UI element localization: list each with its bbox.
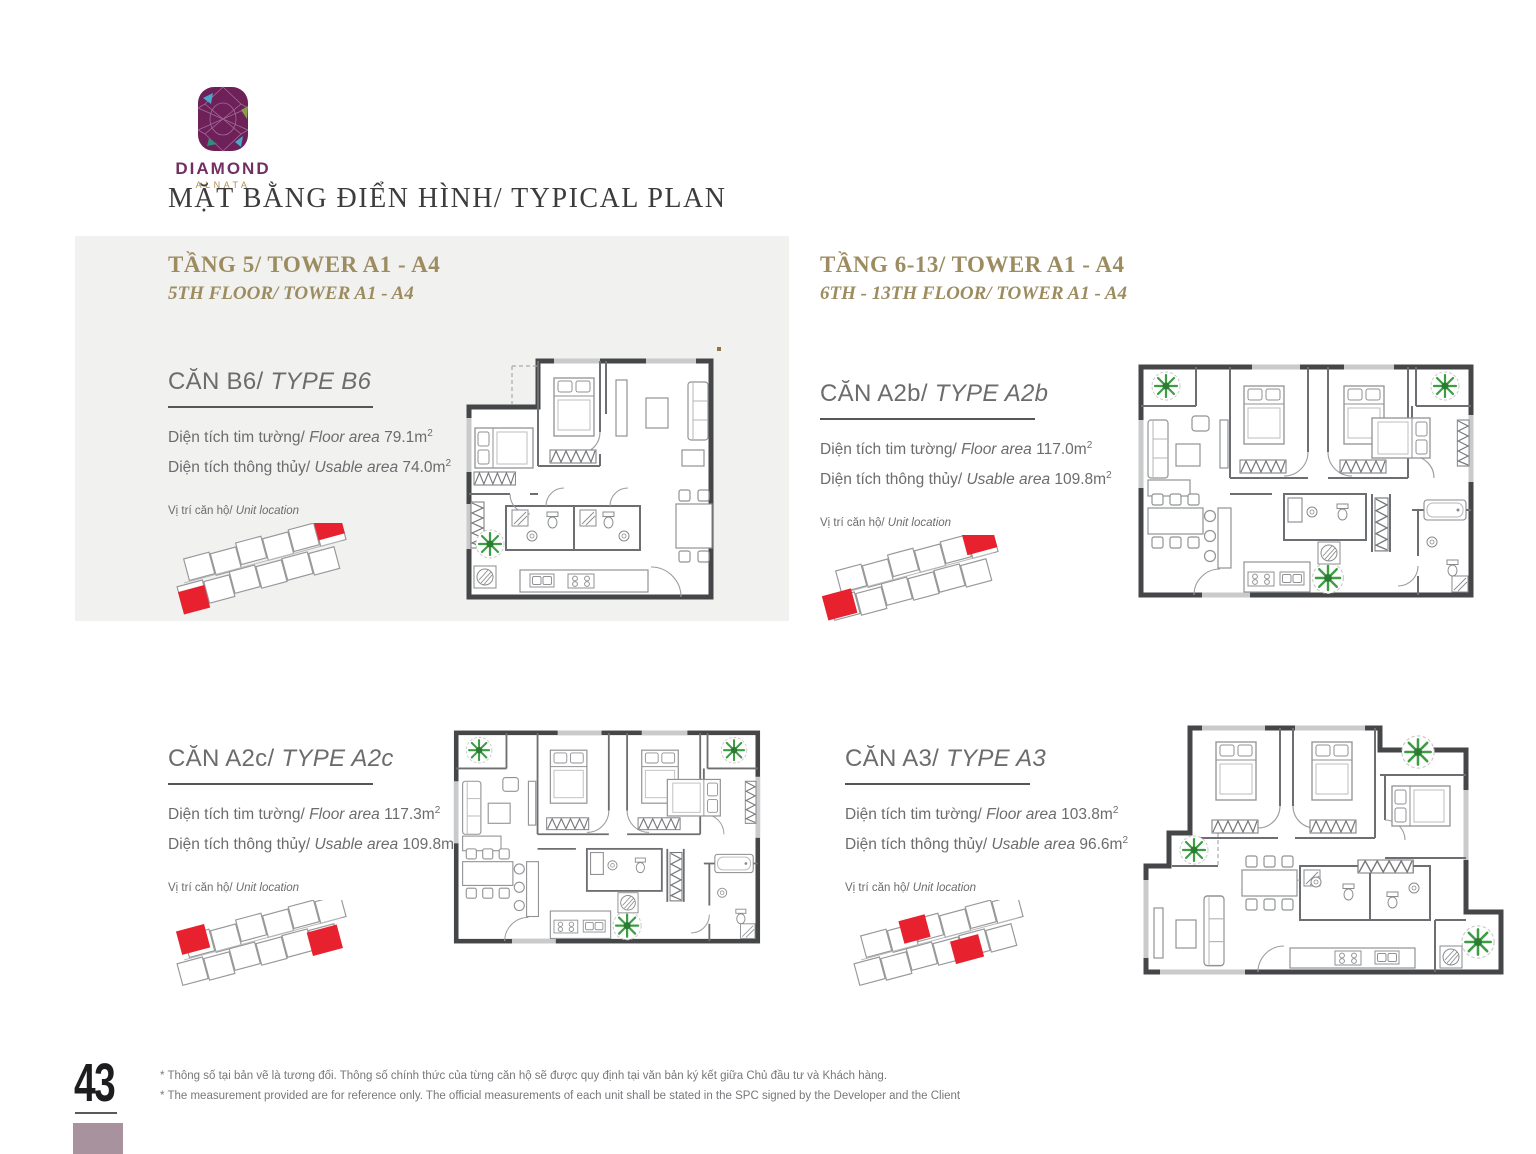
floor-plan-a3 [1130,720,1506,980]
floor-plan-a2c [448,726,766,948]
unit-name-vi: CĂN B6/ [168,368,263,395]
sup-2: 2 [1113,805,1119,816]
bed-icon [1312,742,1352,800]
basin-icon [1307,507,1317,517]
wardrobe-icon [1358,860,1413,873]
sofa-icon [1148,420,1168,478]
shower-icon [512,510,528,526]
dining-set-icon [1242,856,1297,910]
wardrobe-icon [1340,460,1386,473]
stool [1205,551,1216,562]
shower-icon [580,510,596,526]
basin-icon [527,531,537,541]
plant-icon [1462,926,1494,958]
shower-icon [1452,576,1468,592]
sup-2: 2 [1087,440,1093,451]
page-number-underline [75,1112,117,1114]
sink-icon [1280,572,1304,585]
keyplan-a2c [168,900,358,995]
usable-area-label-vi: Diện tích thông thủy/ [168,459,310,476]
bed-icon [475,428,533,468]
unit-name-en: TYPE B6 [270,368,371,395]
vanity [1288,498,1302,522]
bed-icon [1392,786,1450,826]
plant-icon [1152,372,1180,400]
side-table [682,450,704,466]
stove-icon [1335,951,1361,965]
footnotes: * Thông số tại bản vẽ là tương đối. Thôn… [160,1066,960,1106]
diamond-gem-icon [197,86,249,152]
sup-2: 2 [435,805,441,816]
toilet-icon [1387,892,1398,908]
wardrobe-icon [1375,498,1388,551]
title-underline [168,783,373,785]
sofa-icon [1204,896,1224,966]
keyplan-a2b [820,535,1010,630]
sink-icon [1375,951,1399,964]
usable-area-label-en: Usable area [314,459,398,476]
stove-icon [568,574,594,588]
section-title: TẦNG 6-13/ TOWER A1 - A4 [820,252,1127,278]
floor-plan-a2b [1132,360,1480,602]
page-title: MẶT BẰNG ĐIỂN HÌNH/ TYPICAL PLAN [168,183,726,215]
floor-area-label-en: Floor area [309,429,380,446]
plant-icon [1431,372,1459,400]
wardrobe-icon [1240,460,1286,473]
coffee-table [1176,920,1196,948]
wardrobe-icon [1457,420,1469,466]
section-header-floor5: TẦNG 5/ TOWER A1 - A4 5TH FLOOR/ TOWER A… [168,252,440,305]
title-underline [168,406,373,408]
tv-cabinet [616,380,627,436]
bed-icon [1216,742,1256,800]
toilet-icon [1343,884,1354,900]
section-title: TẦNG 5/ TOWER A1 - A4 [168,252,440,278]
sup-2: 2 [1106,470,1112,481]
wardrobe-icon [474,472,515,485]
keyplan [847,900,1030,987]
bed-icon [1244,386,1284,444]
section-subtitle: 5TH FLOOR/ TOWER A1 - A4 [168,283,440,305]
tv-cabinet [1154,908,1163,958]
section-header-floor6-13: TẦNG 6-13/ TOWER A1 - A4 6TH - 13TH FLOO… [820,252,1127,305]
plant-icon [1402,736,1434,768]
stove-icon [1248,572,1274,586]
sup-2: 2 [427,428,433,439]
basin-icon [1409,883,1419,893]
plant-icon [476,530,504,558]
footnote-vi: * Thông số tại bản vẽ là tương đối. Thôn… [160,1066,960,1086]
bed-icon [1372,418,1430,458]
unit-name-vi: CĂN A3/ [845,745,939,772]
coffee-table [646,398,668,428]
armchair [1192,416,1209,431]
floor-plan-b6 [450,354,722,604]
unit-name-vi: CĂN A2c/ [168,745,274,772]
unit-name-en: TYPE A2b [935,380,1049,407]
coffee-table [1176,444,1200,466]
title-underline [845,783,1030,785]
bathtub-icon [1424,500,1466,520]
washer-icon [474,566,496,588]
title-underline [820,418,1035,420]
washer-icon [1318,542,1340,564]
unit-name-vi: CĂN A2b/ [820,380,928,407]
toilet-icon [603,512,614,528]
wardrobe-icon [1310,820,1356,833]
wardrobe-icon [550,450,596,463]
section-subtitle: 6TH - 13TH FLOOR/ TOWER A1 - A4 [820,283,1127,305]
bed-icon [554,378,594,436]
keyplan-a3 [845,900,1035,995]
brochure-page: DIAMOND ALNATA MẶT BẰNG ĐIỂN HÌNH/ TYPIC… [0,0,1536,1154]
footnote-en: * The measurement provided are for refer… [160,1086,960,1106]
kitchen-island [1218,508,1231,568]
plant-icon [1180,836,1208,864]
basin-icon [619,531,629,541]
wardrobe-icon [1212,820,1258,833]
plant-icon [1313,563,1344,594]
floor-area-label-vi: Diện tích tim tường/ [168,429,305,446]
unit-name-en: TYPE A3 [946,745,1046,772]
toilet-icon [1447,560,1458,576]
dining-set-icon [1148,494,1203,548]
keyplan-b6 [168,523,358,618]
tv-cabinet [1220,420,1228,468]
stool [1205,531,1216,542]
brand-logo: DIAMOND ALNATA [168,86,278,190]
toilet-icon [547,512,558,528]
sup-2: 2 [1122,835,1128,846]
usable-area-value: 74.0m [402,459,445,476]
footer-color-square [73,1123,123,1154]
toilet-icon [1337,504,1348,520]
washer-icon [1440,946,1462,968]
unit-name-en: TYPE A2c [281,745,393,772]
page-number: 43 [74,1052,114,1114]
basin-icon [1311,877,1321,887]
basin-icon [1427,537,1437,547]
brand-name: DIAMOND [168,159,278,179]
stool [1205,511,1216,522]
sofa-icon [688,382,708,440]
floor-area-value: 79.1m [384,429,427,446]
stray-dot [717,347,721,351]
sink-icon [530,574,554,587]
